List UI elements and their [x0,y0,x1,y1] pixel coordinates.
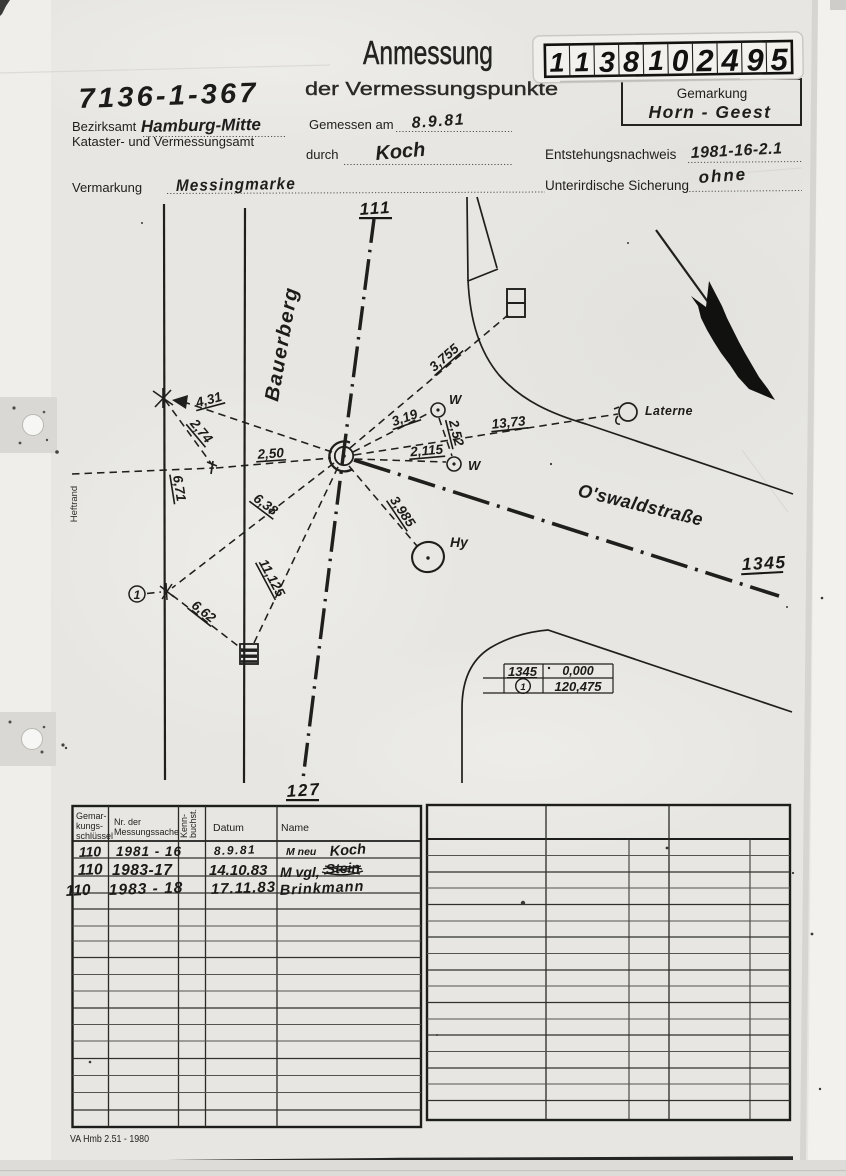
svg-text:110: 110 [65,882,91,900]
svg-text:buchst.: buchst. [188,809,198,838]
svg-text:1: 1 [574,47,590,77]
svg-text:Messingmarke: Messingmarke [176,175,296,195]
svg-text:127: 127 [286,780,322,801]
svg-text:1: 1 [134,588,141,602]
svg-text:kungs-: kungs- [76,821,103,831]
svg-text:Name: Name [281,822,309,834]
svg-text:3: 3 [599,47,616,79]
svg-text:Datum: Datum [213,822,244,834]
svg-text:110: 110 [79,843,102,860]
svg-text:Gemar-: Gemar- [76,811,107,821]
svg-text:Unterirdische Sicherung: Unterirdische Sicherung [545,178,689,193]
svg-text:17.11.83: 17.11.83 [211,879,277,898]
svg-text:Vermarkung: Vermarkung [72,180,142,195]
svg-text:9: 9 [746,42,765,77]
svg-text:111: 111 [359,198,392,219]
svg-text:1983 - 18: 1983 - 18 [109,879,184,899]
svg-text:1: 1 [549,48,565,78]
svg-text:Gemarkung: Gemarkung [677,86,748,101]
svg-text:Entstehungsnachweis: Entstehungsnachweis [545,147,677,162]
svg-text:durch: durch [306,147,339,162]
svg-text:0: 0 [671,45,689,78]
svg-text:M neu: M neu [286,846,317,858]
svg-text:ohne: ohne [698,165,748,187]
svg-text:1: 1 [648,45,664,76]
svg-text:schlüssel: schlüssel [76,831,113,841]
svg-text:0,000: 0,000 [562,664,593,678]
svg-text:Koch: Koch [329,841,366,859]
svg-text:Nr. der: Nr. der [114,817,141,827]
svg-text:120,475: 120,475 [555,679,603,694]
svg-text:5: 5 [770,42,789,77]
svg-text:7136-1-367: 7136-1-367 [78,77,259,114]
svg-text:1345: 1345 [741,552,787,574]
svg-text:Anmessung: Anmessung [363,34,493,71]
svg-text:Gemessen am: Gemessen am [309,117,394,132]
svg-text:Koch: Koch [375,139,427,165]
svg-text:Hy: Hy [450,534,469,550]
svg-text:W: W [449,392,463,407]
svg-text:1983-17: 1983-17 [112,862,173,879]
svg-text:2: 2 [695,43,714,78]
svg-text:14.10.83: 14.10.83 [209,862,268,879]
svg-text:VA Hmb 2.51 - 1980: VA Hmb 2.51 - 1980 [70,1134,149,1145]
svg-text:1981 - 16: 1981 - 16 [116,844,182,859]
svg-text:110: 110 [78,861,104,879]
svg-text:Horn - Geest: Horn - Geest [648,102,771,122]
svg-text:8.9.81: 8.9.81 [214,843,257,858]
svg-text:der Vermessungspunkte: der Vermessungspunkte [305,78,558,99]
svg-text:Messungssache: Messungssache [114,827,179,837]
svg-text:Hamburg-Mitte: Hamburg-Mitte [141,115,261,136]
svg-text:M vgl,: M vgl, [280,864,320,880]
svg-text:W: W [468,458,482,473]
svg-text:Kataster- und Vermessungsamt: Kataster- und Vermessungsamt [72,134,254,149]
svg-text:8: 8 [623,46,641,78]
svg-text:4: 4 [720,43,739,78]
svg-text:1: 1 [520,682,525,693]
svg-text:1345: 1345 [508,664,538,679]
svg-text:Heftrand: Heftrand [69,486,80,522]
svg-text:Laterne: Laterne [645,404,693,418]
svg-text:Bezirksamt: Bezirksamt [72,119,137,134]
